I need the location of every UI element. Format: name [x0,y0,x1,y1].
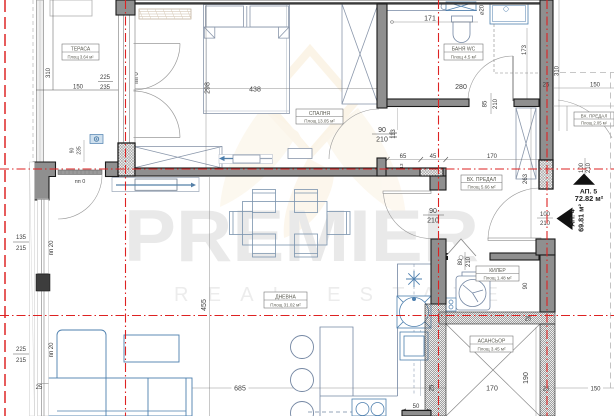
svg-text:25: 25 [36,385,43,391]
svg-text:Площ 5.66 м²: Площ 5.66 м² [468,185,496,190]
svg-text:БАНЯ WC: БАНЯ WC [452,47,476,53]
svg-text:100: 100 [579,162,585,173]
svg-text:210: 210 [540,221,551,227]
svg-text:225: 225 [100,75,111,81]
svg-text:25: 25 [543,387,550,393]
svg-text:Площ 3.64 м²: Площ 3.64 м² [67,55,94,60]
svg-text:210: 210 [427,218,439,225]
svg-text:ВХ. ПРЕДАЛ: ВХ. ПРЕДАЛ [581,114,608,119]
svg-text:45: 45 [430,154,437,160]
svg-text:210: 210 [466,256,472,267]
svg-text:пп 20: пп 20 [49,240,55,256]
svg-text:150: 150 [590,387,601,393]
svg-text:25: 25 [543,83,550,89]
svg-text:Площ 1.48 м²: Площ 1.48 м² [484,276,512,281]
svg-text:65: 65 [400,154,407,160]
svg-text:25: 25 [430,384,436,391]
svg-text:310: 310 [555,65,561,76]
svg-text:173: 173 [522,44,528,55]
svg-text:310: 310 [46,67,52,78]
svg-text:90: 90 [523,282,529,289]
svg-text:90: 90 [70,148,76,154]
svg-text:170: 170 [486,386,498,393]
svg-text:⌀20: ⌀20 [480,4,486,15]
svg-text:263: 263 [523,173,529,184]
svg-text:171: 171 [424,16,436,23]
svg-text:90: 90 [378,127,386,134]
svg-text:298: 298 [205,82,212,94]
svg-text:210: 210 [493,98,499,109]
svg-text:235: 235 [100,85,111,91]
svg-text:25: 25 [525,317,532,323]
svg-text:685: 685 [234,386,246,393]
svg-text:АП. 4: АП. 4 [570,209,577,226]
svg-text:85: 85 [483,100,489,107]
svg-text:Площ 13.05 м²: Площ 13.05 м² [304,119,335,124]
svg-text:210: 210 [376,137,388,144]
svg-text:50: 50 [413,404,420,410]
svg-text:КИЛЕР: КИЛЕР [489,268,506,274]
svg-text:Площ 2.05 м²: Площ 2.05 м² [581,121,608,126]
svg-text:ТЕРАСА: ТЕРАСА [71,47,91,53]
svg-text:190: 190 [523,372,530,384]
svg-text:150: 150 [73,85,84,91]
svg-text:170: 170 [487,154,498,160]
svg-text:Площ 4.5 м²: Площ 4.5 м² [451,55,477,60]
svg-text:90: 90 [429,208,437,215]
svg-text:215: 215 [16,246,27,252]
svg-text:210: 210 [586,162,592,173]
svg-text:100: 100 [540,212,551,218]
svg-text:80: 80 [458,258,464,265]
svg-text:PREMIER: PREMIER [124,196,479,277]
svg-text:113: 113 [391,129,397,139]
svg-text:пп 0: пп 0 [75,179,86,185]
svg-text:пп 20: пп 20 [49,342,55,358]
svg-text:АСАНСЬОР: АСАНСЬОР [478,339,506,345]
svg-text:150: 150 [590,83,601,89]
svg-text:СПАЛНЯ: СПАЛНЯ [309,111,331,117]
svg-text:438: 438 [249,87,261,94]
svg-text:72.82 м²: 72.82 м² [575,194,604,203]
svg-text:235: 235 [77,146,83,155]
svg-text:Площ 31.02 м²: Площ 31.02 м² [270,303,301,308]
svg-text:225: 225 [16,347,27,353]
svg-text:215: 215 [16,358,27,364]
svg-text:455: 455 [201,299,208,311]
svg-text:Площ 3.45 м²: Площ 3.45 м² [478,347,506,352]
svg-text:69.81 м²: 69.81 м² [577,204,586,232]
svg-text:ДНЕВНА: ДНЕВНА [275,295,296,301]
svg-text:280: 280 [455,84,467,91]
svg-text:135: 135 [16,235,27,241]
svg-text:ВХ. ПРЕДАЛ: ВХ. ПРЕДАЛ [467,177,497,183]
